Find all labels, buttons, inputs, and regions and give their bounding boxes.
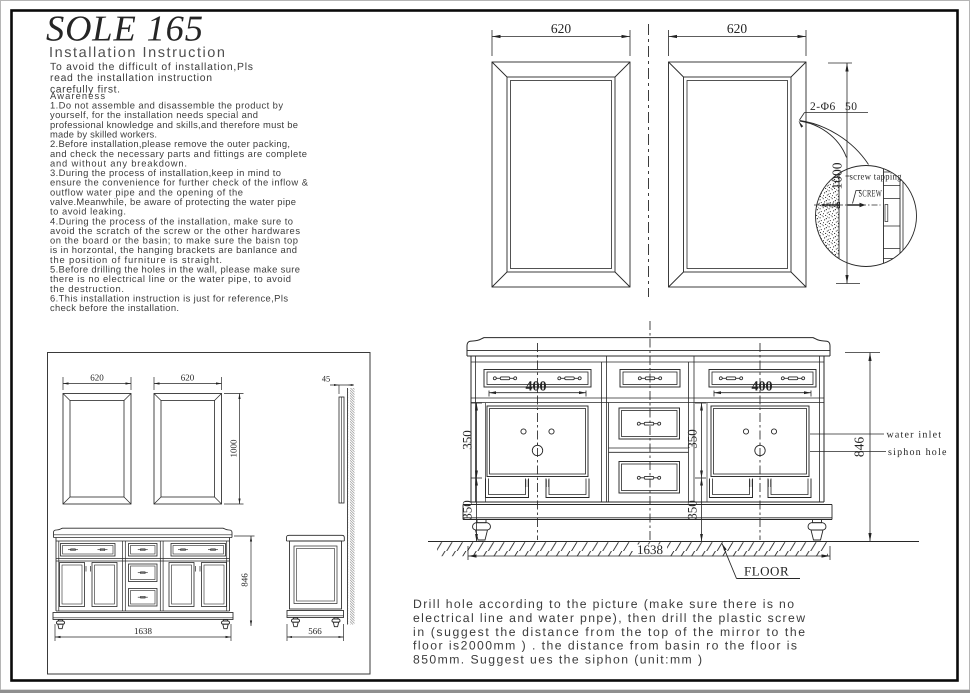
svg-text:check before the installation.: check before the installation. bbox=[50, 302, 179, 313]
svg-text:floor is2000mm ) . the distanc: floor is2000mm ) . the distance from bas… bbox=[413, 639, 797, 653]
svg-text:620: 620 bbox=[181, 373, 195, 383]
svg-text:electrical line and water pnpe: electrical line and water pnpe), then dr… bbox=[413, 611, 805, 625]
svg-text:SCREW: SCREW bbox=[859, 189, 883, 200]
svg-text:350: 350 bbox=[460, 430, 475, 450]
svg-text:SOLE 165: SOLE 165 bbox=[46, 8, 203, 49]
svg-text:siphon hole: siphon hole bbox=[888, 447, 948, 458]
svg-text:50: 50 bbox=[845, 101, 858, 113]
svg-text:350: 350 bbox=[685, 500, 700, 520]
svg-text:566: 566 bbox=[308, 626, 322, 636]
svg-text:To avoid the difficult of inst: To avoid the difficult of installation,P… bbox=[50, 62, 253, 73]
svg-text:620: 620 bbox=[727, 21, 748, 36]
svg-text:350: 350 bbox=[685, 429, 700, 449]
svg-text:screw tapping: screw tapping bbox=[850, 173, 902, 183]
svg-text:400: 400 bbox=[752, 380, 773, 395]
svg-text:Installation Instruction: Installation Instruction bbox=[49, 45, 225, 61]
svg-text:FLOOR: FLOOR bbox=[744, 564, 789, 579]
svg-text:620: 620 bbox=[551, 21, 572, 36]
svg-text:1000: 1000 bbox=[229, 439, 239, 458]
svg-text:1638: 1638 bbox=[637, 542, 663, 557]
svg-text:water inlet: water inlet bbox=[887, 430, 943, 441]
svg-text:45: 45 bbox=[322, 374, 331, 384]
svg-text:2-Φ6: 2-Φ6 bbox=[810, 101, 836, 113]
svg-text:350: 350 bbox=[460, 500, 475, 520]
svg-text:read the installation instruct: read the installation instruction bbox=[50, 73, 212, 84]
svg-text:1638: 1638 bbox=[134, 626, 153, 636]
svg-text:620: 620 bbox=[90, 373, 104, 383]
svg-text:846: 846 bbox=[240, 573, 250, 587]
svg-text:400: 400 bbox=[526, 380, 547, 395]
svg-text:846: 846 bbox=[852, 437, 867, 458]
